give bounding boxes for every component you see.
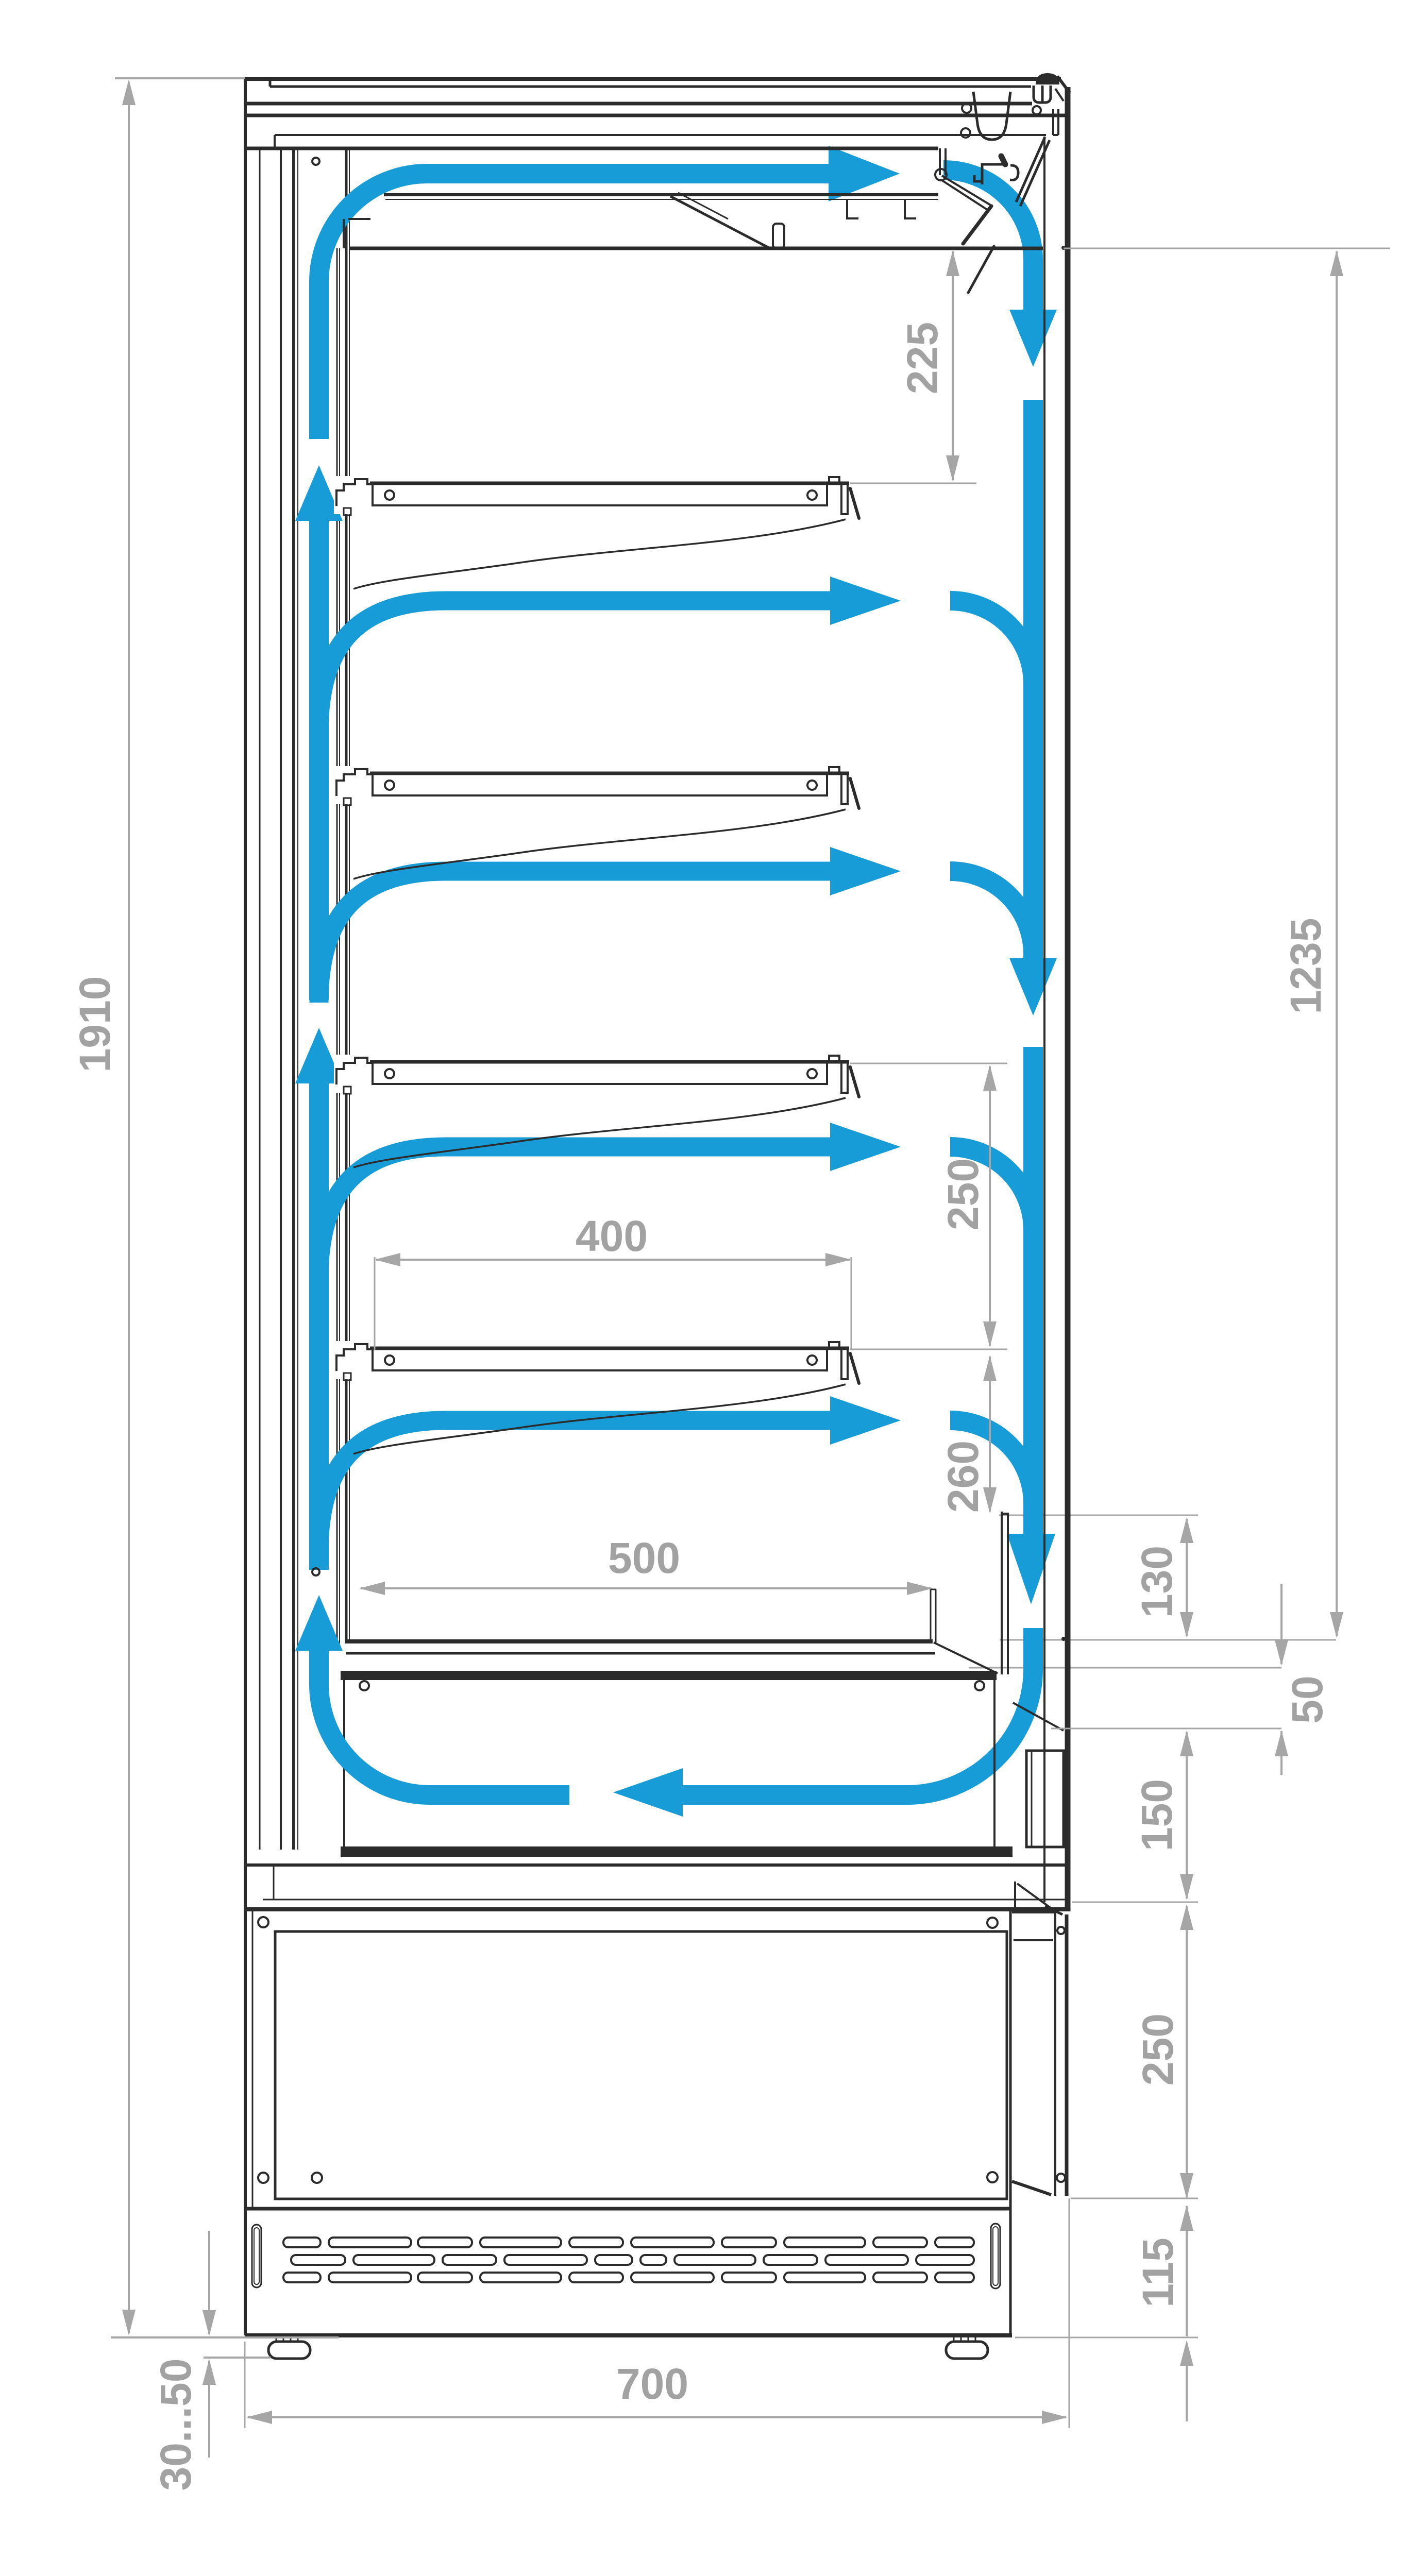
svg-text:150: 150 [1133,1779,1181,1851]
svg-text:700: 700 [616,2360,688,2408]
svg-text:500: 500 [608,1534,680,1582]
svg-text:1910: 1910 [71,976,119,1073]
svg-text:115: 115 [1134,2238,1182,2308]
svg-text:50: 50 [1283,1675,1331,1723]
svg-text:400: 400 [576,1212,648,1260]
svg-text:250: 250 [1134,2013,1182,2086]
svg-text:260: 260 [939,1440,987,1513]
svg-text:130: 130 [1133,1546,1181,1618]
svg-text:225: 225 [898,322,947,394]
svg-text:30...50: 30...50 [151,2359,200,2491]
svg-text:250: 250 [939,1158,987,1230]
svg-text:1235: 1235 [1281,918,1330,1014]
